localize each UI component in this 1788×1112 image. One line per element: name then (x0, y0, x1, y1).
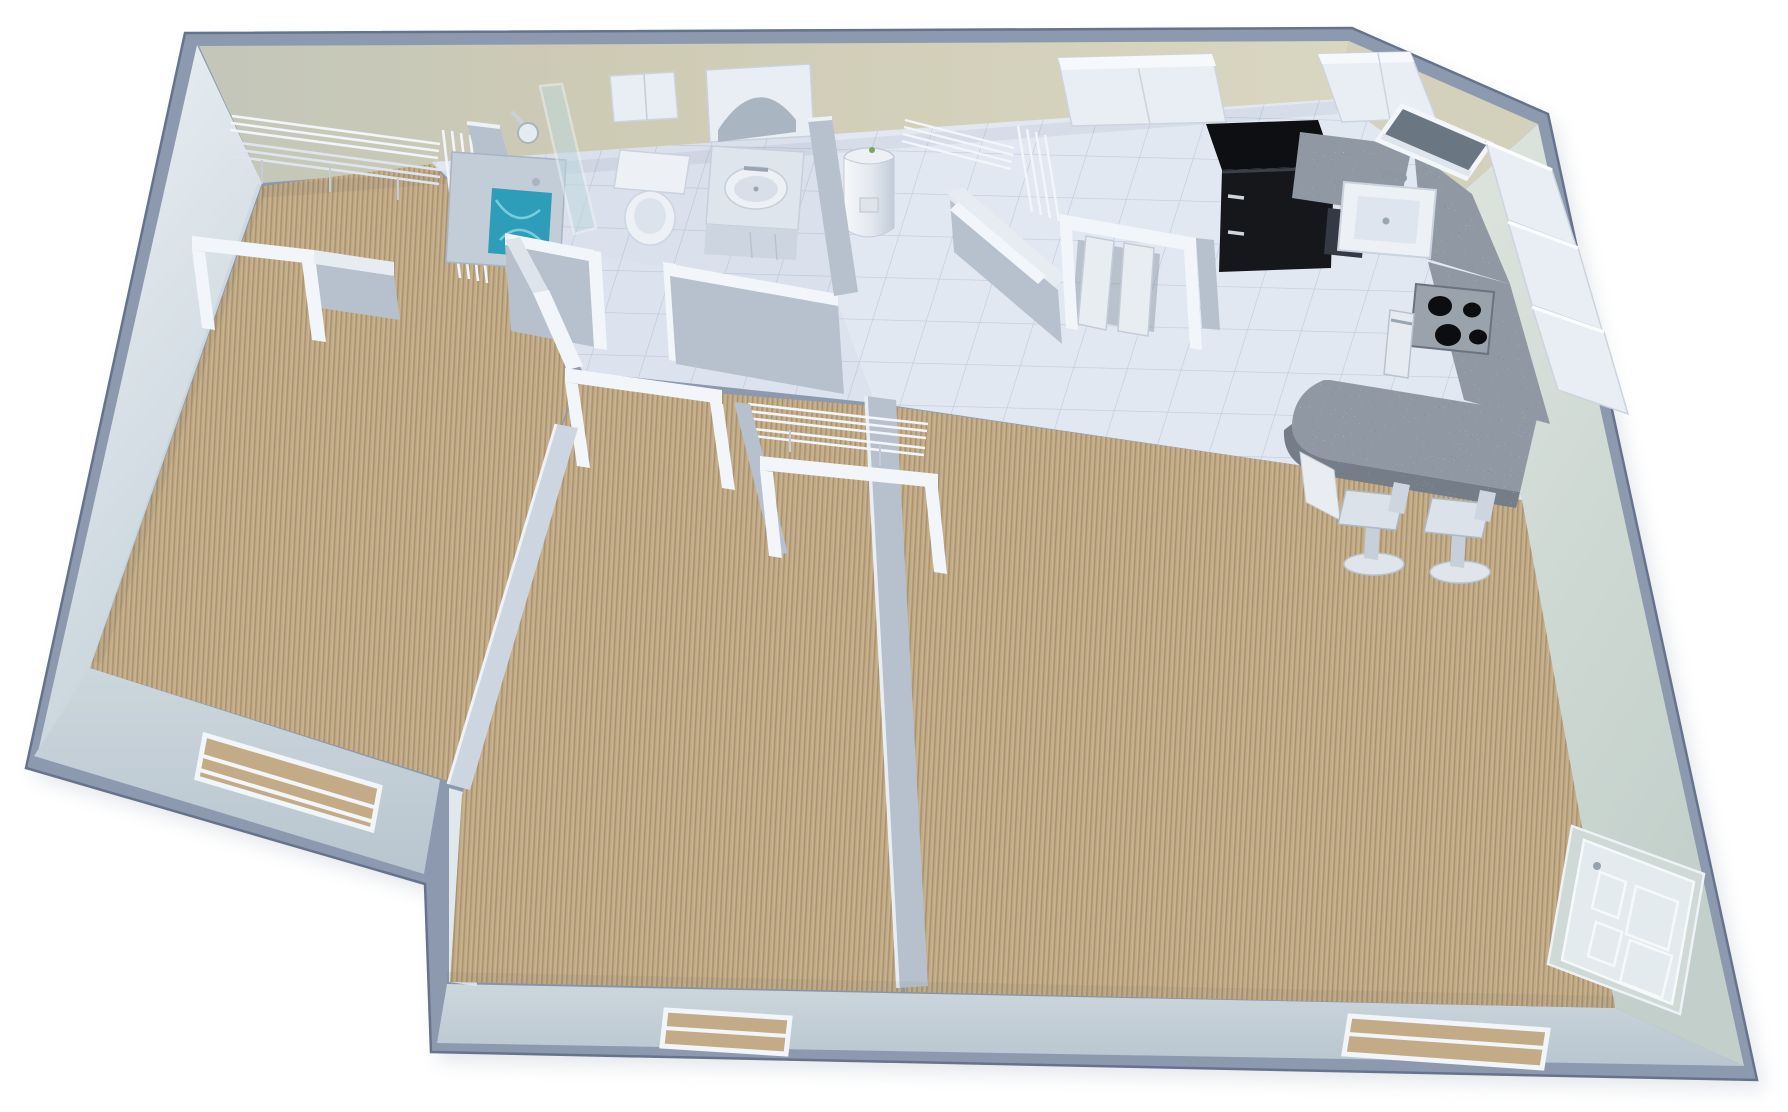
water-heater-panel (860, 198, 878, 212)
sink-drain-kitchen (1383, 218, 1390, 225)
tub-faucet (532, 178, 540, 186)
floorplan-svg: 3D isometric dollhouse-view floor plan r… (0, 0, 1788, 1112)
toilet-seat (634, 198, 666, 234)
upper-cabinet-top-strip-2 (1318, 52, 1414, 64)
shower-head-icon (518, 123, 538, 143)
bath-east-wall-cap (808, 118, 832, 120)
water-heater-valve (869, 147, 875, 153)
bifold-door-leaf-right (1118, 243, 1154, 336)
floorplan-render: 3D isometric dollhouse-view floor plan r… (0, 0, 1788, 1112)
burner-2 (1463, 303, 1481, 318)
kitchen-faucet-head (1399, 174, 1407, 182)
burner-4 (1469, 330, 1487, 345)
sink-faucet (744, 168, 768, 170)
sink-drain (754, 187, 759, 192)
burner-1 (1428, 296, 1452, 316)
door-knob (1593, 862, 1601, 870)
toilet-tank (614, 150, 690, 194)
burner-3 (1435, 324, 1461, 346)
